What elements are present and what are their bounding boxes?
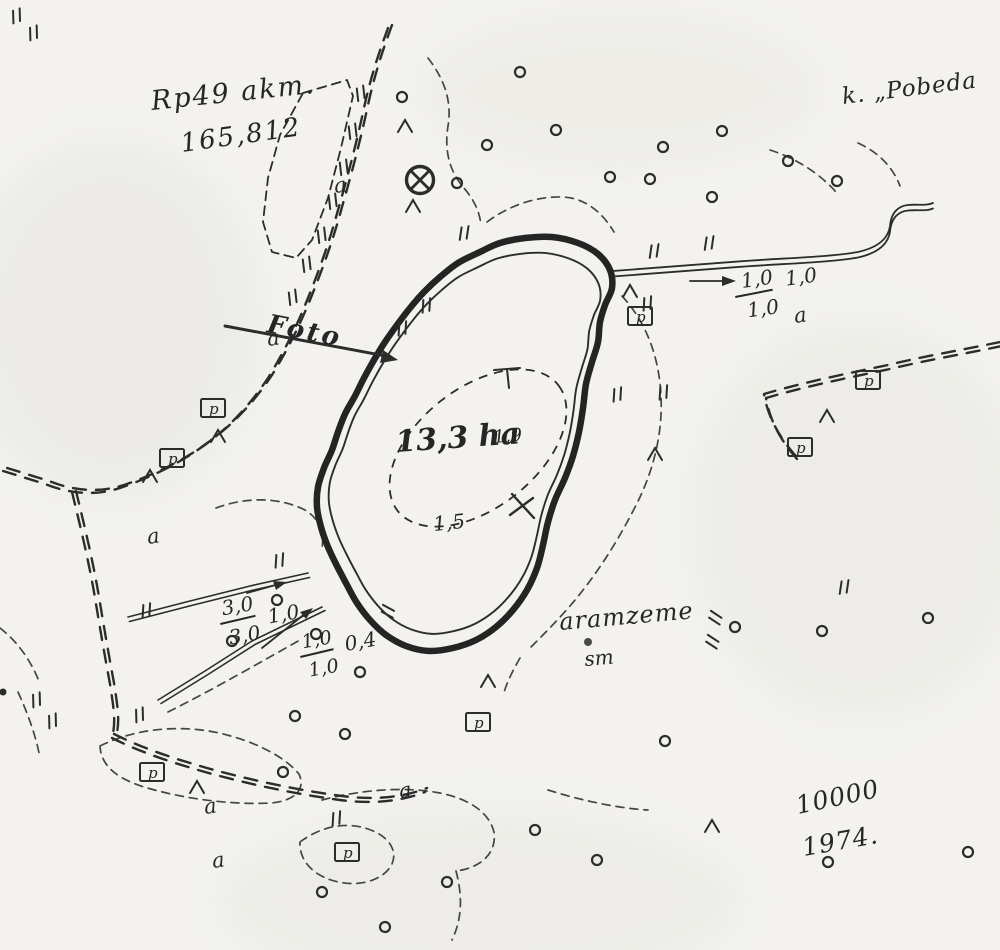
grass-tuft-icon	[285, 290, 300, 306]
road-west	[72, 492, 114, 738]
fraction-numerator: 1,0	[739, 265, 774, 293]
conifer-tree-icon	[623, 285, 637, 297]
fraction-denominator: 1,0	[307, 655, 341, 682]
contour-line	[548, 790, 648, 810]
grass-tuft-icon	[705, 635, 719, 649]
grass-tuft-icon	[458, 226, 471, 240]
stand-letter-box-icon: p	[628, 307, 652, 326]
deciduous-tree-icon	[963, 847, 973, 857]
stand-letter: p	[636, 308, 646, 326]
deciduous-tree-icon	[605, 172, 615, 182]
scan-smudges	[0, 638, 592, 696]
fraction-side-value: 0,4	[343, 627, 378, 656]
fraction-denominator: 1,0	[746, 294, 781, 322]
grass-tuft-icon	[345, 124, 360, 140]
grass-tuft-icon	[29, 692, 43, 707]
grass-tuft-icon	[272, 553, 286, 567]
grass-tuft-icon	[656, 385, 670, 399]
conifer-tree-icon	[398, 120, 412, 132]
conifer-tree-icon	[705, 820, 719, 832]
deciduous-tree-icon	[355, 667, 365, 677]
deciduous-tree-icon	[290, 711, 300, 721]
depth-label-1: 1,9	[493, 425, 523, 448]
year-label: 1974.	[800, 820, 880, 862]
stand-letter-box-icon: p	[466, 713, 490, 732]
grass-tuft-icon	[9, 8, 23, 23]
land-use-label: aramzeme	[558, 596, 695, 636]
scale-label: 10000	[793, 774, 882, 820]
contour-line	[503, 658, 520, 696]
contour-line	[858, 143, 900, 186]
contour-line	[487, 197, 614, 232]
stand-letter-a: a	[792, 302, 808, 328]
outlet-fraction: 1,0 1,0 1,0	[732, 259, 823, 324]
contour-line	[168, 640, 300, 712]
contour-line	[0, 628, 40, 684]
conifer-tree-icon	[190, 781, 204, 793]
village-label: k. „Pobeda	[841, 68, 979, 110]
deciduous-tree-icon	[645, 174, 655, 184]
stand-letter: p	[864, 372, 874, 390]
circled-cross-symbol	[407, 167, 434, 194]
grass-tuft-icon	[45, 713, 59, 728]
map-canvas: pppppppp aaaaaaa Rp49 akm. 165,812 k. „P…	[0, 0, 1000, 950]
stand-letter-a: a	[397, 777, 413, 803]
stand-letter: p	[474, 714, 484, 732]
ditch2-fraction: 1,0 1,0 0,4	[296, 619, 381, 683]
grass-tuft-icon	[703, 236, 716, 250]
stand-letter-box-icon: p	[140, 763, 164, 782]
deciduous-tree-icon	[278, 767, 288, 777]
benchmark-label-line2: 165,812	[179, 112, 304, 159]
conifer-tree-icon	[481, 675, 495, 687]
deciduous-tree-icon	[832, 176, 842, 186]
deciduous-tree-icon	[707, 192, 717, 202]
stand-letter: p	[796, 439, 806, 457]
road-south	[112, 738, 425, 802]
survey-map: pppppppp aaaaaaa Rp49 akm. 165,812 k. „P…	[0, 0, 1000, 950]
grass-tuft-icon	[299, 257, 314, 273]
contour-line	[770, 150, 836, 192]
stand-letter: p	[343, 844, 353, 862]
stand-letter-a: a	[210, 847, 226, 873]
fraction-denominator: 3,0	[227, 620, 263, 649]
deciduous-tree-icon	[397, 92, 407, 102]
contour-line	[18, 692, 40, 758]
conifer-tree-icon	[406, 200, 420, 212]
hatched-area	[263, 80, 353, 258]
grass-tuft-icon	[610, 387, 624, 401]
inflow-ditches	[128, 573, 325, 704]
stand-letter-a: a	[145, 523, 161, 549]
contour-line	[216, 500, 323, 548]
grass-tuft-icon	[132, 707, 146, 722]
grass-tuft-icon	[329, 811, 343, 825]
deciduous-tree-icon	[660, 736, 670, 746]
stand-letter-a: a	[332, 172, 348, 198]
land-use-sub-label: sm	[583, 645, 614, 671]
outlet-stream	[613, 203, 933, 271]
grass-tuft-icon	[648, 244, 661, 258]
deciduous-tree-icon	[823, 857, 833, 867]
fraction-numerator: 3,0	[220, 591, 256, 620]
grass-tuft-icon	[26, 25, 40, 40]
stand-letter: p	[209, 400, 219, 418]
benchmark-label-line1: Rp49 akm.	[148, 69, 317, 117]
depth-label-2: 1,5	[432, 509, 466, 536]
stand-letter-a: a	[202, 793, 218, 819]
deciduous-tree-icon	[340, 729, 350, 739]
stand-letter: p	[168, 450, 178, 468]
stand-letter: p	[148, 764, 158, 782]
ditch1-fraction: 3,0 3,0 1,0	[216, 583, 304, 650]
fraction-side-value: 1,0	[784, 263, 819, 291]
